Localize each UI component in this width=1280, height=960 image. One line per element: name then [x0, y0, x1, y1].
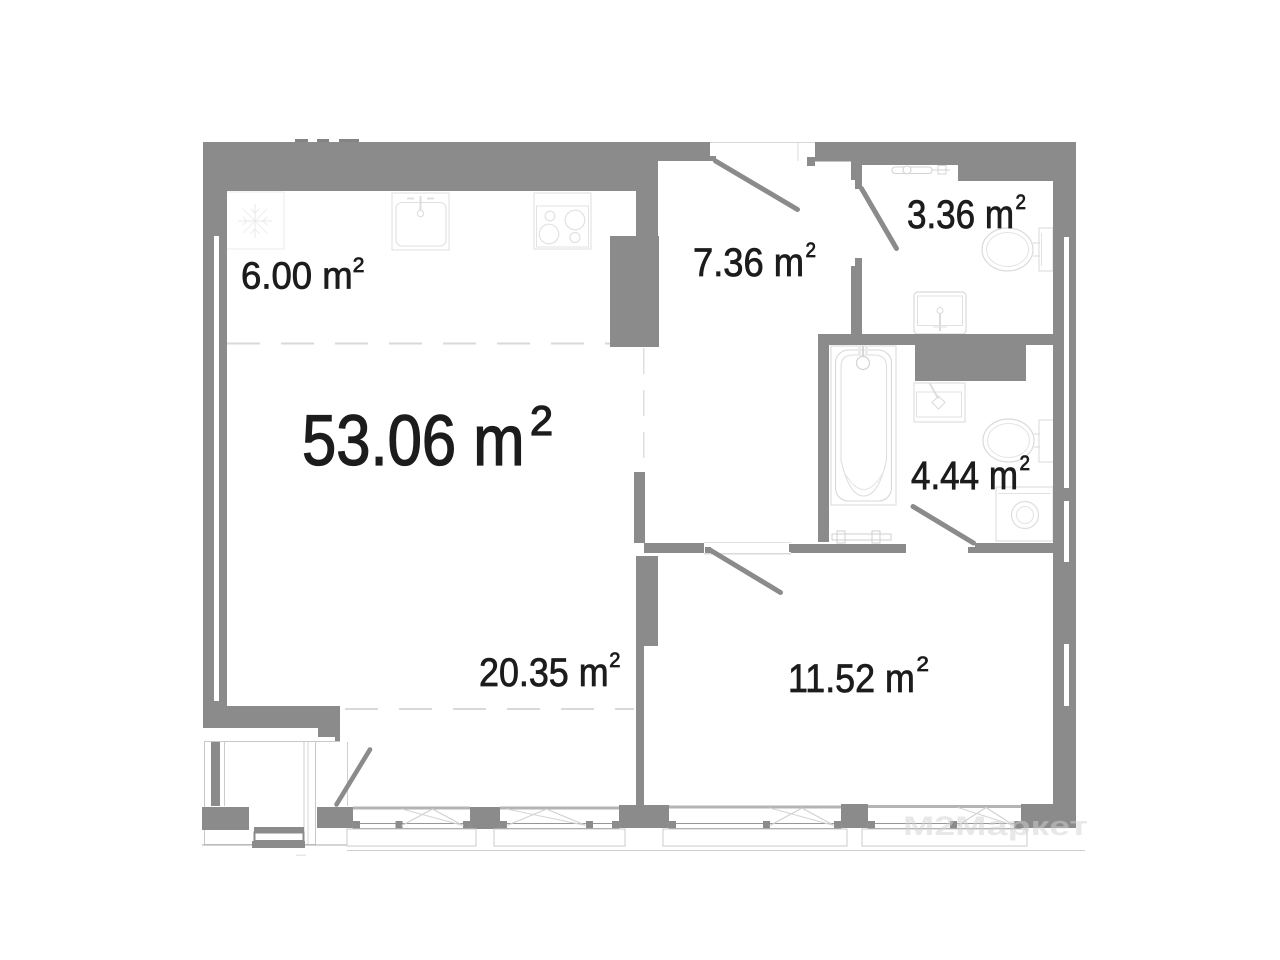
svg-text:53.06 m: 53.06 m: [302, 402, 525, 481]
svg-text:2: 2: [530, 397, 553, 444]
svg-text:20.35 m: 20.35 m: [479, 651, 609, 695]
svg-text:2: 2: [917, 653, 929, 676]
svg-text:3.36 m: 3.36 m: [907, 193, 1014, 237]
svg-text:11.52 m: 11.52 m: [788, 657, 915, 701]
svg-text:2: 2: [806, 239, 817, 262]
svg-text:2: 2: [1020, 452, 1031, 475]
svg-text:М2Маркет: М2Маркет: [903, 811, 1088, 841]
svg-text:6.00 m: 6.00 m: [241, 256, 353, 298]
svg-text:7.36 m: 7.36 m: [693, 241, 804, 285]
svg-text:2: 2: [609, 649, 620, 672]
svg-text:2: 2: [353, 254, 365, 277]
svg-text:2: 2: [1016, 191, 1027, 214]
svg-text:4.44 m: 4.44 m: [911, 454, 1018, 498]
